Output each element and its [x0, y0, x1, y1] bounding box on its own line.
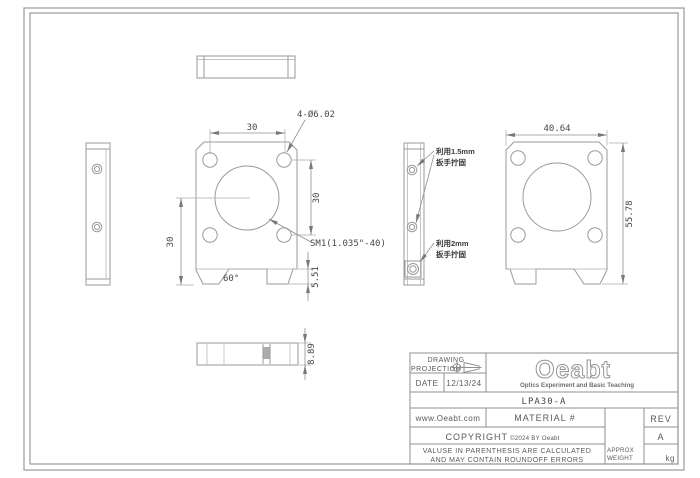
front-view	[176, 142, 297, 284]
bottom-setscrew-thread-hatch	[264, 348, 270, 358]
drawing-label: DRAWING	[427, 357, 464, 364]
corner-hole	[277, 153, 291, 167]
approx-label: APPROX	[607, 447, 634, 454]
website: www.Oeabt.com	[415, 414, 481, 423]
side-view-notes: 利用1.5mm 扳手拧固 利用2mm 扳手拧固	[416, 146, 475, 262]
dim-angle-label: 60°	[223, 274, 239, 284]
weight-unit: kg	[666, 454, 675, 463]
bottom-view	[197, 343, 298, 365]
cad-drawing: 30 30 30 5.51 60° 4-Ø6.02 SM1(1.035"-40)	[0, 0, 700, 478]
note-wrench15-line1: 利用1.5mm	[435, 146, 475, 156]
company-logo: Oeabt	[535, 356, 611, 384]
material-label: MATERIAL #	[514, 413, 576, 423]
date-label: DATE	[416, 379, 439, 388]
setscrew-hole-inner	[94, 224, 99, 229]
top-view	[197, 56, 295, 78]
disclaimer-line1: VALUSE IN PARENTHESIS ARE CALCULATED	[423, 448, 592, 455]
note-wrench15-line2: 扳手拧固	[436, 157, 466, 167]
dim-notch-depth-label: 5.51	[311, 266, 321, 288]
rev-label: REV	[650, 414, 672, 424]
front-view-dimensions: 30 30 30 5.51 60° 4-Ø6.02 SM1(1.035"-40)	[166, 109, 386, 301]
hole-callout-label: 4-Ø6.02	[297, 109, 335, 120]
corner-hole	[203, 228, 217, 242]
setscrew-hole-outer	[407, 165, 417, 175]
leader-line-wrench2	[420, 243, 434, 262]
copyright-label: COPYRIGHT	[445, 432, 508, 442]
central-bore	[523, 163, 591, 231]
drawing-sheet: 30 30 30 5.51 60° 4-Ø6.02 SM1(1.035"-40)	[0, 0, 700, 478]
thread-callout-label: SM1(1.035"-40)	[310, 239, 386, 249]
dim-overall-width-label: 40.64	[543, 124, 570, 134]
leader-line-holes	[287, 120, 305, 152]
left-side-view	[86, 143, 110, 285]
dim-overall-height-label: 55.78	[625, 200, 635, 227]
clamp-screw-outer	[408, 264, 419, 275]
dim-thickness-label: 8.89	[307, 343, 317, 365]
clamp-screw-inner	[410, 266, 416, 272]
setscrew-hole-inner	[409, 167, 414, 172]
setscrew-hole-inner	[409, 224, 414, 229]
part-number: LPA30-A	[522, 397, 567, 407]
weight-label: WEIGHT	[607, 455, 633, 462]
dim-height-left-label: 30	[166, 237, 176, 248]
leader-line-wrench15-bottom	[416, 155, 434, 223]
front-view-outline	[196, 142, 297, 284]
disclaimer-line2: AND MAY CONTAIN ROUNDOFF ERRORS	[430, 457, 583, 464]
dim-width-label: 30	[247, 123, 258, 133]
corner-hole	[511, 228, 525, 242]
date-value: 12/13/24	[446, 379, 481, 388]
back-view-dimensions: 40.64 55.78	[506, 124, 635, 284]
setscrew-hole-outer	[92, 164, 102, 174]
setscrew-hole-outer	[92, 222, 102, 232]
corner-hole	[588, 151, 602, 165]
rev-value: A	[657, 432, 664, 442]
company-tagline: Optics Experiment and Basic Teaching	[520, 382, 634, 389]
corner-hole	[511, 151, 525, 165]
right-side-view	[404, 143, 424, 285]
bottom-view-dimensions: 8.89	[299, 328, 317, 380]
copyright-detail: ©2024 BY Oeabt	[510, 435, 560, 442]
setscrew-hole-outer	[407, 222, 417, 232]
projection-symbol-icon	[452, 362, 482, 373]
back-view	[506, 142, 607, 284]
bottom-view-outline	[197, 343, 298, 365]
setscrew-hole-inner	[94, 166, 99, 171]
title-block: DRAWING PROJECTION DATE 12/13/24 Oeabt O…	[410, 353, 678, 464]
corner-hole	[588, 228, 602, 242]
note-wrench2-line2: 扳手拧固	[436, 249, 466, 259]
note-wrench2-line1: 利用2mm	[435, 238, 469, 248]
dim-height-right-label: 30	[312, 193, 322, 204]
corner-hole	[203, 153, 217, 167]
